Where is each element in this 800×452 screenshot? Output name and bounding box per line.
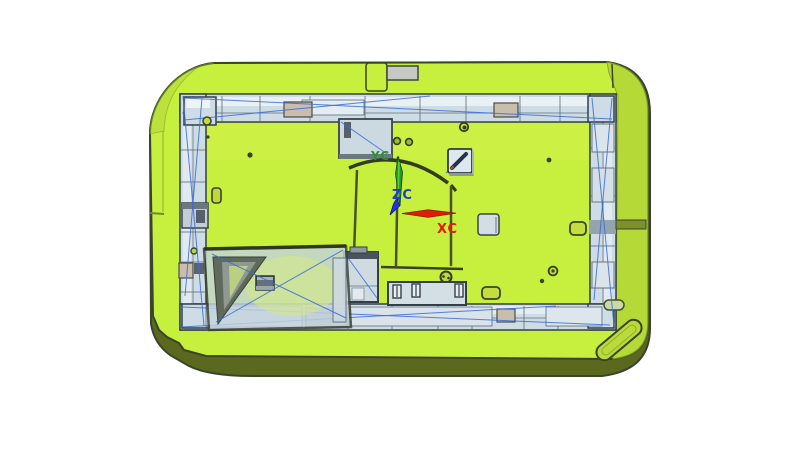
- hole-ring-c2: [406, 139, 413, 146]
- panel-boss-front: [256, 286, 274, 290]
- hole-ring-c3-center: [463, 126, 467, 130]
- hole-ring-tl: [203, 117, 211, 125]
- left-rail-sub-block: [196, 210, 205, 223]
- slot-bottom-center: [482, 287, 500, 299]
- hole-dot-2: [247, 152, 252, 157]
- tan-block-top-2: [494, 103, 518, 117]
- right-rail-block-dark: [589, 220, 616, 234]
- axis-label-yc: YC: [370, 149, 390, 163]
- hole-dot-3: [547, 158, 552, 163]
- tan-block-left: [179, 263, 193, 278]
- cad-viewport[interactable]: YC ZC XC: [0, 0, 800, 452]
- insert-panel[interactable]: [204, 246, 351, 330]
- pen-box-bottom-face: [448, 173, 474, 176]
- sketch-circle: [441, 272, 452, 283]
- cad-canvas[interactable]: YC ZC XC: [0, 0, 800, 452]
- top-edge-notch: [387, 66, 418, 80]
- left-rail-hole: [191, 248, 197, 254]
- top-edge-tab: [366, 63, 387, 91]
- left-edge-step: [150, 213, 164, 214]
- topright-corner-line: [612, 64, 613, 88]
- sketch-circle-dot1: [442, 275, 445, 278]
- left-rail-block-cap: [182, 203, 208, 209]
- sketch-circle-dot2: [447, 277, 450, 280]
- hole-dot-4: [540, 279, 544, 283]
- hole-dot-1: [206, 135, 209, 138]
- axis-label-zc: ZC: [392, 188, 413, 203]
- stack-bump: [350, 247, 367, 253]
- pen-box[interactable]: [448, 149, 474, 176]
- guide-pin: [604, 300, 624, 310]
- right-ledge: [616, 220, 646, 229]
- stack-inset: [352, 288, 364, 300]
- slot-right: [570, 222, 586, 235]
- hole-ring-c1: [394, 138, 401, 145]
- hole-ring-br-center: [551, 269, 554, 272]
- slot-left: [212, 188, 221, 203]
- pen-box-right-face: [472, 149, 474, 176]
- axis-label-xc: XC: [437, 222, 458, 237]
